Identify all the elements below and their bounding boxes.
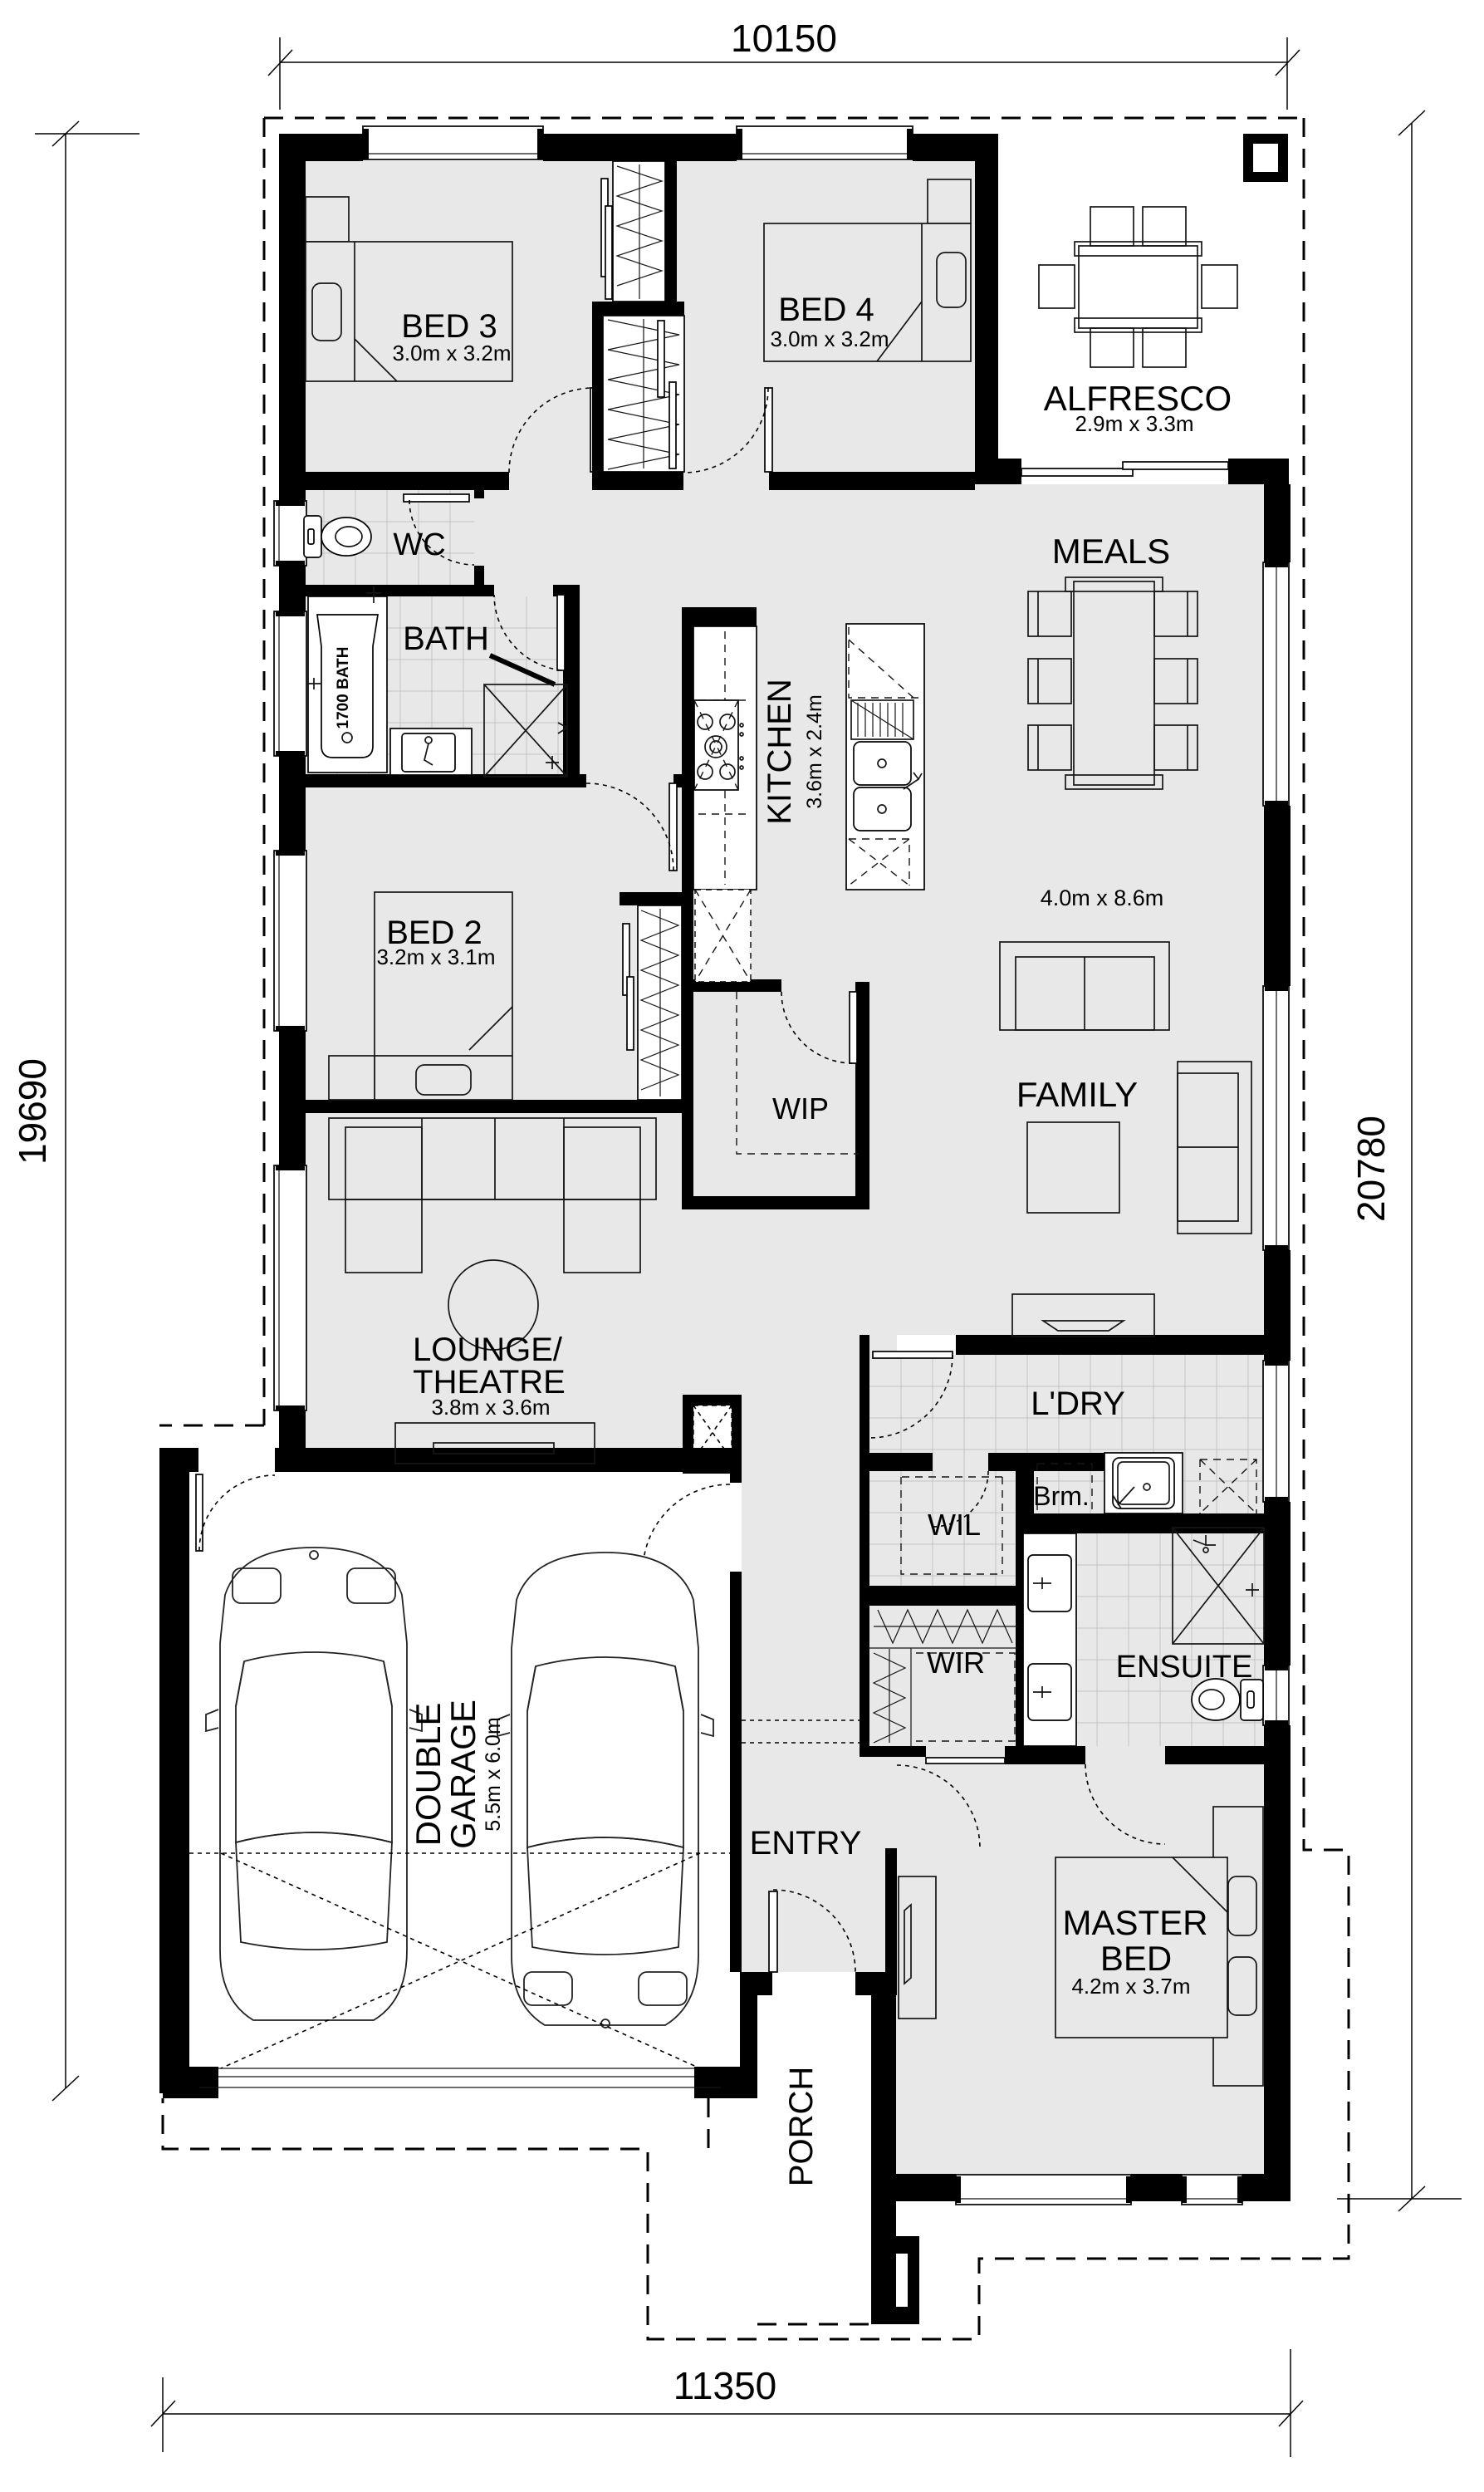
svg-text:3.0m x 3.2m: 3.0m x 3.2m [392,341,511,365]
svg-text:BED: BED [1100,1939,1172,1978]
svg-text:BED 3: BED 3 [401,308,497,345]
svg-text:5.5m x 6.0m: 5.5m x 6.0m [482,1717,505,1832]
svg-text:ENTRY: ENTRY [750,1825,862,1862]
svg-text:WC: WC [393,527,445,562]
svg-text:FAMILY: FAMILY [1016,1075,1138,1114]
svg-text:GARAGE: GARAGE [443,1700,482,1849]
svg-text:10150: 10150 [731,17,837,60]
svg-text:4.0m x 8.6m: 4.0m x 8.6m [1041,885,1164,910]
svg-text:3.6m x 2.4m: 3.6m x 2.4m [803,694,826,809]
svg-text:PORCH: PORCH [783,2067,820,2186]
svg-text:3.2m x 3.1m: 3.2m x 3.1m [376,944,495,969]
svg-text:ENSUITE: ENSUITE [1116,1650,1253,1685]
svg-text:WIP: WIP [772,1091,829,1126]
svg-text:1700 BATH: 1700 BATH [335,647,352,729]
svg-text:2.9m x 3.3m: 2.9m x 3.3m [1075,411,1193,436]
svg-text:MASTER: MASTER [1062,1903,1207,1942]
svg-text:Brm.: Brm. [1033,1481,1090,1511]
svg-text:4.2m x 3.7m: 4.2m x 3.7m [1071,1974,1190,1999]
svg-text:20780: 20780 [1349,1116,1393,1222]
svg-text:KITCHEN: KITCHEN [762,679,798,825]
svg-text:WIL: WIL [928,1508,981,1542]
svg-text:BATH: BATH [403,621,489,657]
svg-text:3.0m x 3.2m: 3.0m x 3.2m [770,326,889,351]
svg-text:19690: 19690 [11,1058,54,1165]
svg-text:WIR: WIR [927,1646,985,1680]
svg-text:DOUBLE: DOUBLE [409,1703,448,1847]
svg-text:BED 4: BED 4 [778,292,874,328]
svg-text:L'DRY: L'DRY [1031,1386,1125,1422]
svg-text:LOUNGE/: LOUNGE/ [413,1332,563,1368]
svg-text:3.8m x 3.6m: 3.8m x 3.6m [431,1395,550,1420]
svg-text:MEALS: MEALS [1052,532,1170,571]
svg-text:11350: 11350 [673,2364,777,2407]
